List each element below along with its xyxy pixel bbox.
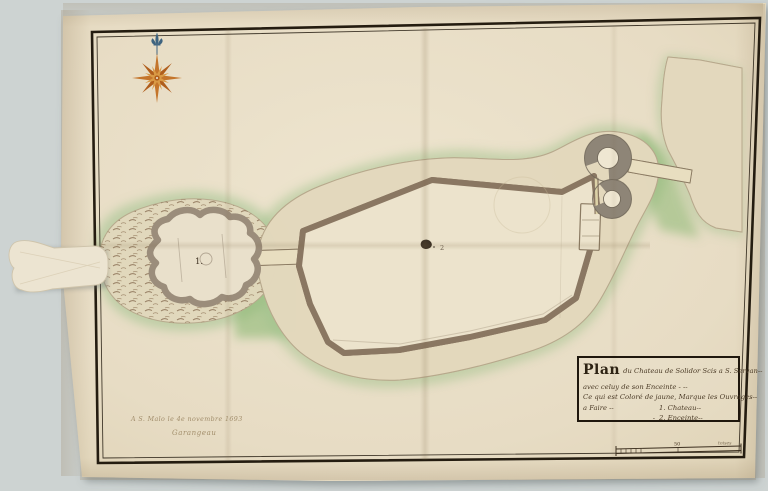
cartouche-line3: Ce qui est Coloré de jaune, Marque les O…: [583, 392, 735, 403]
date-place-annotation: A S. Malo le 4e novembre 1693: [131, 416, 243, 423]
cartouche-title-word: Plan: [583, 362, 620, 378]
legend-dash-1: [641, 403, 659, 413]
legend-row-2: - 2. Enceinte--: [583, 413, 735, 423]
legend-item-enceinte: 2. Enceinte--: [659, 413, 703, 423]
cartouche-title-line: Plandu Chateau de Solidor Scis a S. Serv…: [583, 360, 735, 382]
legend-spacer: [583, 413, 641, 423]
legend-dash-2: -: [641, 413, 659, 423]
scale-mid-label: 50: [674, 442, 680, 448]
paper-edge-shade-left: [61, 10, 91, 476]
paper-edge-shade-top: [63, 3, 763, 27]
fort-1: [150, 210, 259, 304]
paper-flap-shape: [9, 241, 108, 292]
cartouche-title-rest: du Chateau de Solidor Scis a S. Servan--: [623, 367, 762, 375]
scanned-map-page: 1. 2: [0, 0, 768, 491]
legend-afaire-label: a Faire --: [583, 403, 641, 413]
legend-row-1: a Faire -- 1. Chateau--: [583, 403, 735, 413]
fort-number-label: 1.: [195, 257, 203, 267]
title-cartouche: Plandu Chateau de Solidor Scis a S. Serv…: [577, 356, 740, 422]
cartouche-line2: avec celuy de son Enceinte - --: [583, 382, 735, 393]
scale-unit-label: toises: [718, 441, 732, 447]
legend-item-chateau: 1. Chateau--: [659, 403, 701, 413]
engineer-signature: Garangeau: [172, 429, 217, 437]
